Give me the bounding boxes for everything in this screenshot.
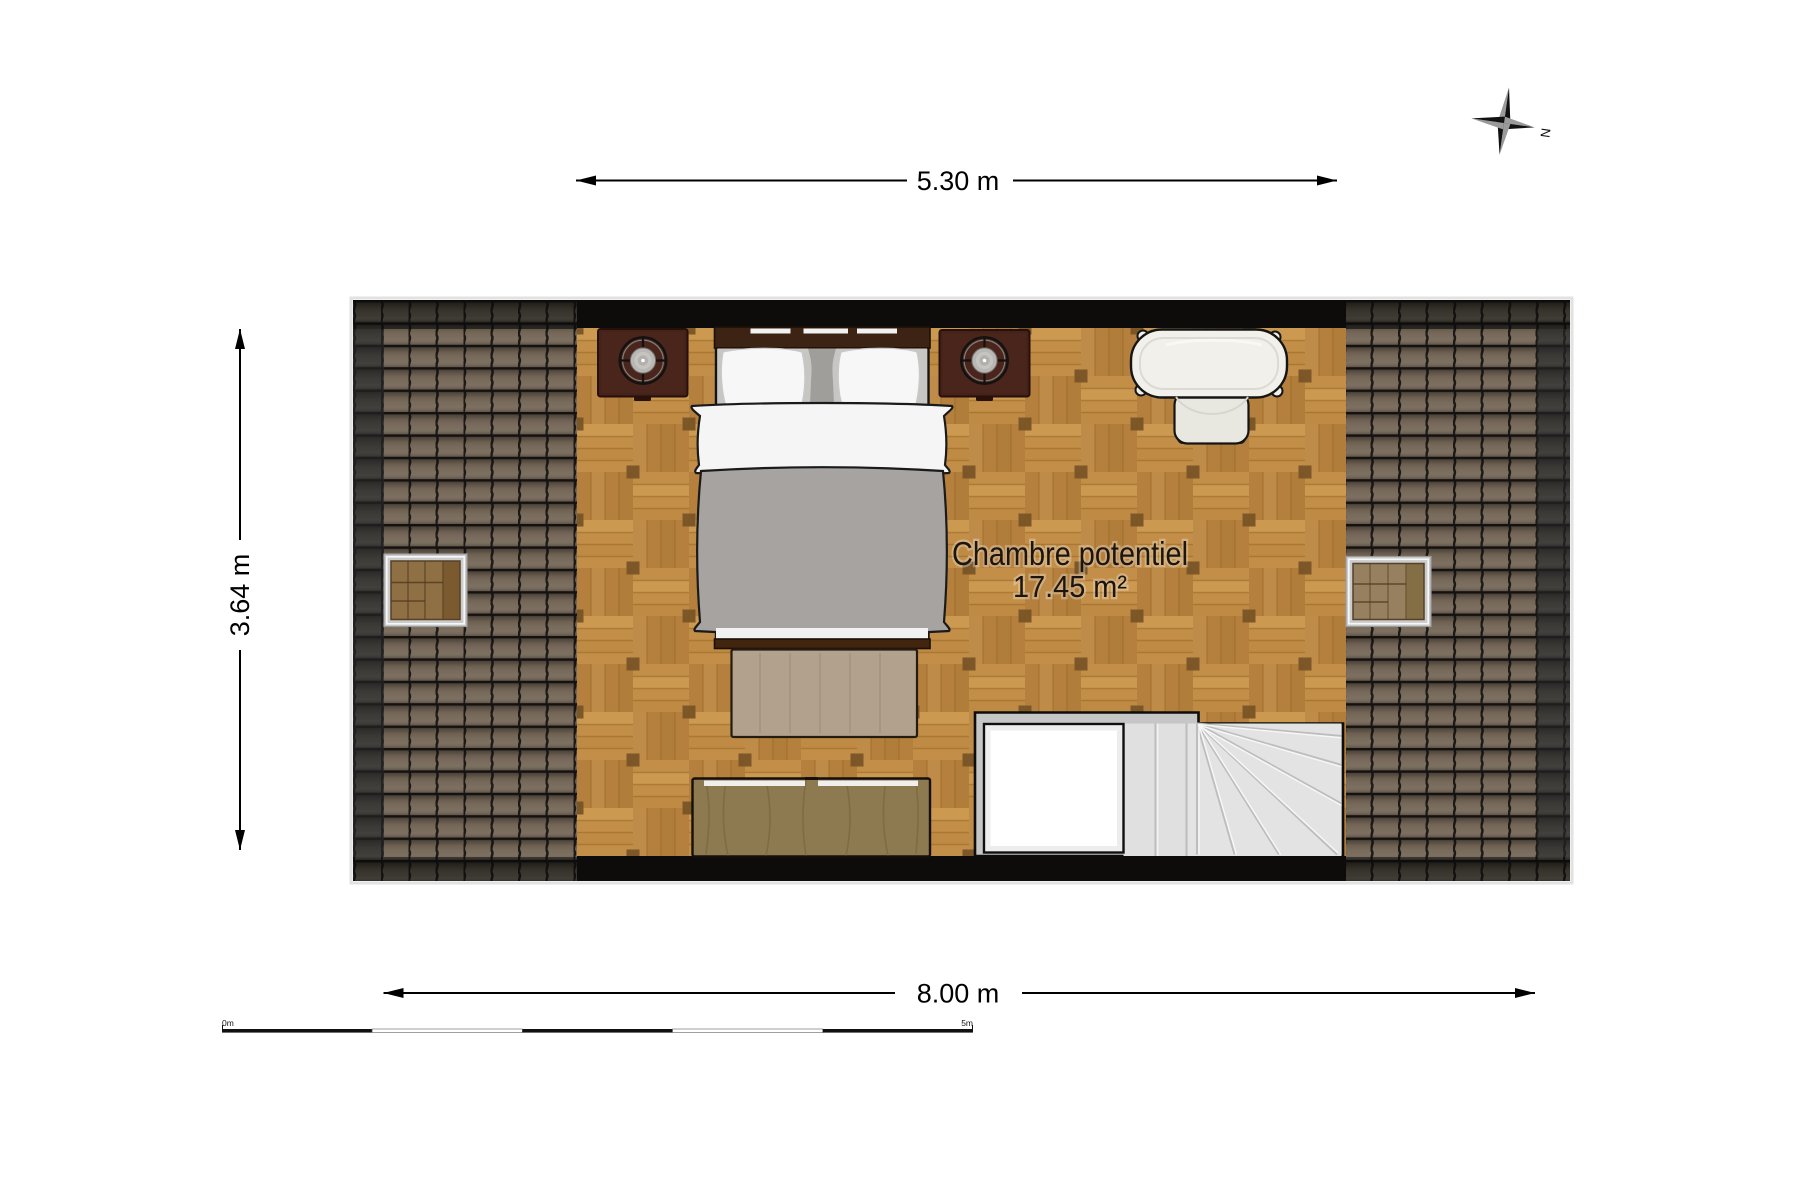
svg-text:8.00 m: 8.00 m xyxy=(917,979,1000,1009)
svg-text:5m: 5m xyxy=(961,1018,973,1028)
svg-text:5.30 m: 5.30 m xyxy=(917,166,1000,196)
svg-text:Chambre potentiel: Chambre potentiel xyxy=(952,535,1188,572)
svg-text:17.45 m²: 17.45 m² xyxy=(1013,569,1127,604)
svg-text:3.64 m: 3.64 m xyxy=(225,554,255,637)
svg-text:0m: 0m xyxy=(222,1018,234,1028)
